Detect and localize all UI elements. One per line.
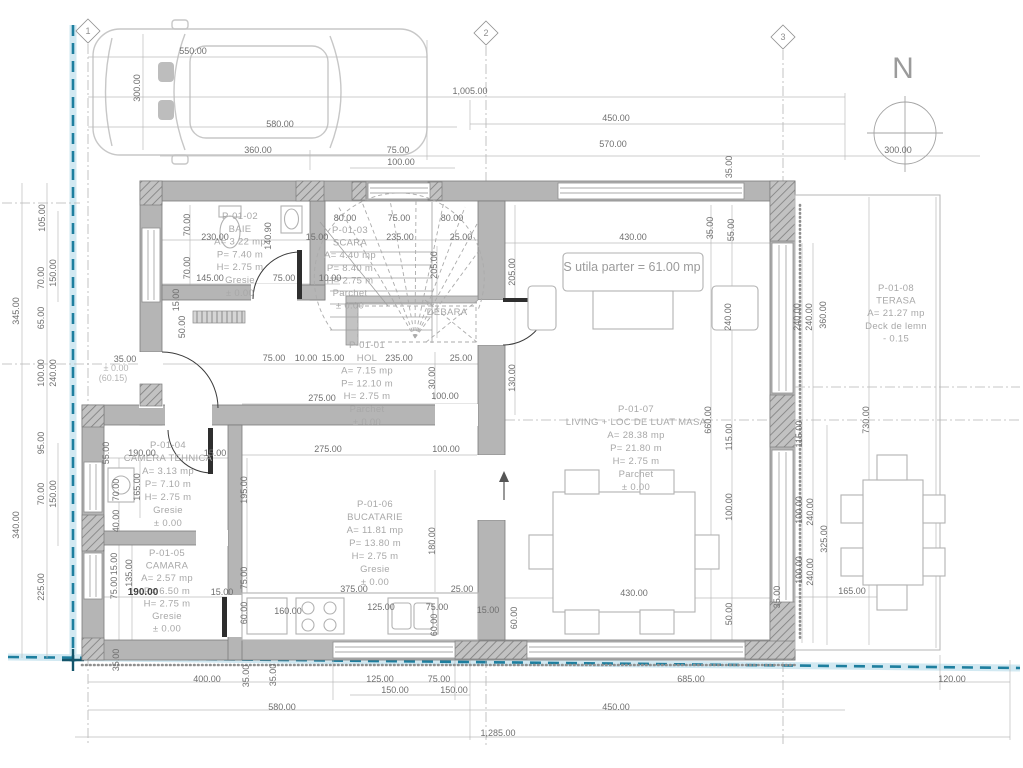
dimension-label: 15.00 — [171, 289, 181, 312]
dimension-label: 580.00 — [268, 702, 296, 712]
dimension-label: 450.00 — [602, 702, 630, 712]
dimension-label: 130.00 — [507, 364, 517, 392]
dimension-label: 70.00 — [182, 257, 192, 280]
window-sliding-door — [772, 450, 793, 602]
room-label-line: - 0.15 — [883, 333, 909, 344]
dimension-label: 275.00 — [308, 393, 336, 403]
grid-marker-number: 1 — [85, 26, 90, 36]
window — [558, 183, 744, 199]
room-label-line: P-01-02 — [222, 211, 258, 222]
window — [527, 642, 745, 658]
room-label-line: P-01-01 — [349, 340, 385, 351]
dimension-label: ± 0.00 — [104, 363, 129, 373]
dimension-label: 400.00 — [193, 674, 221, 684]
dimension-label: 25.00 — [450, 353, 473, 363]
grid-marker-2: 2 — [474, 21, 498, 45]
room-label-line: H= 2.75 m — [144, 598, 191, 609]
stove — [296, 598, 344, 634]
dimension-label: 190.00 — [128, 587, 159, 598]
room-label-line: P= 21.80 m — [610, 443, 662, 454]
room-label-P-01-08: P-01-08TERASAA= 21.27 mpDeck de lemn- 0.… — [865, 283, 927, 344]
dimension-label: 660.00 — [703, 406, 713, 434]
room-label-line: SCARA — [333, 238, 368, 249]
car-seat — [158, 62, 174, 82]
room-label-line: ± 0.00 — [154, 518, 182, 529]
dimension-label: 300.00 — [132, 74, 142, 102]
room-label-line: H= 2.75 m — [613, 456, 660, 467]
dining-table — [529, 470, 719, 634]
grid-marker-1: 1 — [76, 19, 100, 43]
room-label-line: P= 13.80 m — [349, 538, 401, 549]
dimension-label: 240.00 — [792, 303, 802, 331]
room-label-line: DEBARA — [427, 307, 468, 318]
dimension-label: 50.00 — [724, 603, 734, 626]
window-sliding-door — [772, 243, 793, 393]
room-label-line: P= 7.10 m — [145, 479, 191, 490]
room-label-line: Gresie — [360, 564, 390, 575]
dimension-label: 235.00 — [385, 353, 413, 363]
dimension-label: 95.00 — [36, 432, 46, 455]
room-label-line: Deck de lemn — [865, 321, 927, 332]
dimension-label: (60.15) — [99, 373, 128, 383]
dimension-label: 75.00 — [273, 273, 296, 283]
room-label-line: A= 3.13 mp — [142, 466, 194, 477]
dimension-label: 125.00 — [366, 674, 394, 684]
dimension-label: 195.00 — [239, 476, 249, 504]
dimension-label: 30.00 — [427, 367, 437, 390]
window — [333, 642, 455, 658]
dimension-label: 165.00 — [838, 586, 866, 596]
dimension-label: 150.00 — [48, 259, 58, 287]
dimension-label: 165.00 — [132, 473, 142, 501]
grid-marker-3: 3 — [771, 25, 795, 49]
room-label-line: A= 28.38 mp — [607, 430, 664, 441]
room-label-P-01-06: P-01-06BUCATARIEA= 11.81 mpP= 13.80 mH= … — [347, 499, 404, 588]
dimension-label: 240.00 — [805, 558, 815, 586]
room-label-line: ± 0.00 — [353, 417, 381, 428]
room-label-line: H= 2.75 m — [217, 262, 264, 273]
room-label-line: A= 7.15 mp — [341, 366, 393, 377]
radiator — [193, 311, 245, 323]
room-label-line: A= 2.57 mp — [141, 573, 193, 584]
window — [368, 183, 430, 199]
window — [142, 228, 160, 302]
room-label-line: LIVING + LOC DE LUAT MASA — [566, 417, 707, 428]
dimension-label: 240.00 — [804, 303, 814, 331]
dimension-label: 80.00 — [334, 213, 357, 223]
dimension-label: 100.00 — [724, 493, 734, 521]
dimension-label: 300.00 — [884, 145, 912, 155]
dimension-label: 1,285.00 — [480, 728, 515, 738]
grid-marker-number: 2 — [483, 28, 488, 38]
room-label-line: P-01-08 — [878, 283, 914, 294]
room-label-line: BAIE — [229, 224, 252, 235]
dimension-label: 70.00 — [182, 214, 192, 237]
dimension-label: 140.90 — [263, 222, 273, 250]
dimension-label: 240.00 — [805, 498, 815, 526]
dimension-label: 10.00 — [295, 353, 318, 363]
dimension-label: 125.00 — [367, 602, 395, 612]
dimension-label: 580.00 — [266, 119, 294, 129]
pantry-door-leaf — [222, 597, 227, 637]
dimension-label: 75.00 — [428, 674, 451, 684]
area-summary: S utila parter = 61.00 mp — [563, 260, 700, 274]
kitchen-counter — [242, 593, 478, 640]
room-label-line: ± 0.00 — [153, 624, 181, 635]
room-label-line: A= 4.40 mp — [324, 250, 376, 261]
dimension-label: 15.00 — [109, 553, 119, 576]
dimension-label: 75.00 — [263, 353, 286, 363]
fridge — [247, 598, 287, 634]
dimension-label: 75.00 — [387, 145, 410, 155]
dimension-label: 70.00 — [36, 483, 46, 506]
room-label-line: HOL — [357, 353, 377, 364]
room-label-line: P-01-03 — [332, 225, 368, 236]
room-label-line: Gresie — [152, 611, 182, 622]
bathroom-door-leaf — [297, 250, 302, 299]
dimension-label: 105.00 — [37, 204, 47, 232]
dimension-label: 70.00 — [111, 479, 121, 502]
dimension-label: 35.00 — [705, 217, 715, 240]
dimension-label: 115.00 — [724, 424, 734, 451]
dimension-label: 100.00 — [431, 391, 459, 401]
entry-door-arc — [162, 352, 218, 408]
room-label-line: H= 2.75 m — [344, 391, 391, 402]
dimension-label: 65.00 — [36, 307, 46, 330]
dimension-label: 15.00 — [204, 448, 227, 458]
bath-sink — [281, 206, 302, 233]
room-label-line: P-01-06 — [357, 499, 393, 510]
dimension-label: 325.00 — [819, 525, 829, 553]
dimension-label: 70.00 — [36, 267, 46, 290]
dimension-label: 60.00 — [509, 607, 519, 630]
dimension-label: 55.00 — [726, 219, 736, 242]
dimension-label: 35.00 — [111, 649, 121, 672]
dimension-label: 360.00 — [818, 301, 828, 329]
floor-plan-page: N S utila parter = 61.00 mp 123 P-01-02B… — [0, 0, 1023, 768]
room-label-DEBARA: DEBARA — [427, 307, 468, 318]
floor-plan-drawing: N S utila parter = 61.00 mp 123 P-01-02B… — [0, 0, 1023, 768]
room-label-line: Parchet — [619, 469, 654, 480]
room-label-line: CAMARA — [146, 561, 189, 572]
dimension-label: 340.00 — [11, 511, 21, 539]
room-label-line: ± 0.00 — [622, 482, 650, 493]
car-seat — [158, 100, 174, 120]
grid-markers: 123 — [76, 19, 795, 49]
dimension-label: 275.00 — [314, 444, 342, 454]
room-label-line: P-01-05 — [149, 548, 185, 559]
dimension-label: 100.00 — [387, 157, 415, 167]
dimension-label: 205.00 — [507, 258, 517, 286]
dimension-label: 150.00 — [440, 685, 468, 695]
grid-marker-number: 3 — [780, 32, 785, 42]
dimension-label: 430.00 — [619, 232, 647, 242]
dimension-label: 40.00 — [111, 510, 121, 533]
dimension-label: 25.00 — [451, 584, 474, 594]
dimension-label: 550.00 — [179, 46, 207, 56]
room-label-line: Parchet — [333, 288, 368, 299]
room-label-line: H= 2.75 m — [145, 492, 192, 503]
dimension-label: 430.00 — [620, 588, 648, 598]
dimension-label: 100.00 — [794, 556, 804, 584]
dimension-label: 730.00 — [861, 406, 871, 434]
room-label-line: P= 7.40 m — [217, 249, 263, 260]
dimension-label: 75.00 — [109, 577, 119, 600]
dimension-label: 345.00 — [11, 297, 21, 325]
room-label-line: Gresie — [153, 505, 183, 516]
window — [84, 462, 102, 512]
dimension-label: 135.00 — [124, 559, 134, 587]
dimension-label: 235.00 — [386, 232, 414, 242]
dimension-label: 145.00 — [196, 273, 224, 283]
room-label-line: BUCATARIE — [347, 512, 403, 523]
room-label-line: ± 0.00 — [336, 301, 364, 312]
room-label-line: Parchet — [350, 404, 385, 415]
room-label-line: A= 11.81 mp — [347, 525, 404, 536]
dimension-label: 15.00 — [322, 353, 345, 363]
dimension-label: 25.00 — [450, 232, 473, 242]
dimension-label: 15.00 — [477, 605, 500, 615]
dimension-label: 240.00 — [723, 303, 733, 331]
room-label-line: H= 2.75 m — [352, 551, 399, 562]
room-label-line: ± 0.00 — [226, 288, 254, 299]
dimension-label: 75.00 — [426, 602, 449, 612]
dimension-label: 75.00 — [388, 213, 411, 223]
dimension-label: 100.00 — [794, 496, 804, 524]
room-label-line: A= 21.27 mp — [867, 308, 924, 319]
dimension-label: 685.00 — [677, 674, 705, 684]
room-label-line: Gresie — [225, 275, 255, 286]
dimension-label: 180.00 — [427, 527, 437, 555]
dimension-label: 160.00 — [274, 606, 302, 616]
dimension-label: 150.00 — [48, 480, 58, 508]
dimension-label: 60.00 — [429, 614, 439, 637]
window — [84, 553, 102, 599]
dimension-label: 120.00 — [938, 674, 966, 684]
dimension-label: 115.00 — [794, 421, 804, 448]
dimension-label: 570.00 — [599, 139, 627, 149]
dimension-label: 360.00 — [244, 145, 272, 155]
dimension-label: 100.00 — [432, 444, 460, 454]
north-letter: N — [892, 52, 914, 85]
room-label-line: P= 12.10 m — [341, 378, 393, 389]
dimension-label: 60.00 — [239, 602, 249, 625]
dimension-label: 100.00 — [36, 359, 46, 387]
north-compass — [867, 96, 943, 172]
dimension-label: 35.00 — [241, 665, 251, 688]
dimension-label: 50.00 — [177, 316, 187, 339]
dimension-label: 205.00 — [429, 251, 439, 279]
dimension-label: 15.00 — [211, 587, 234, 597]
dimension-label: 35.00 — [268, 664, 278, 687]
room-label-line: P-01-07 — [618, 404, 654, 415]
dimension-label: 1,005.00 — [452, 86, 487, 96]
dimension-label: 190.00 — [128, 448, 156, 458]
dimension-label: 75.00 — [239, 567, 249, 590]
dimension-label: 150.00 — [381, 685, 409, 695]
dimension-label: 240.00 — [48, 359, 58, 387]
dimension-label: 225.00 — [36, 573, 46, 601]
dimension-label: 375.00 — [340, 584, 368, 594]
dimension-label: 15.00 — [306, 232, 329, 242]
dimension-label: 55.00 — [101, 442, 111, 465]
dimension-label: 35.00 — [772, 586, 782, 609]
dimension-label: 10.00 — [319, 273, 342, 283]
dimension-label: 35.00 — [724, 156, 734, 179]
dimension-label: 80.00 — [441, 213, 464, 223]
dimension-label: 450.00 — [602, 113, 630, 123]
room-label-line: TERASA — [876, 296, 916, 307]
dimension-label: 230.00 — [201, 232, 229, 242]
